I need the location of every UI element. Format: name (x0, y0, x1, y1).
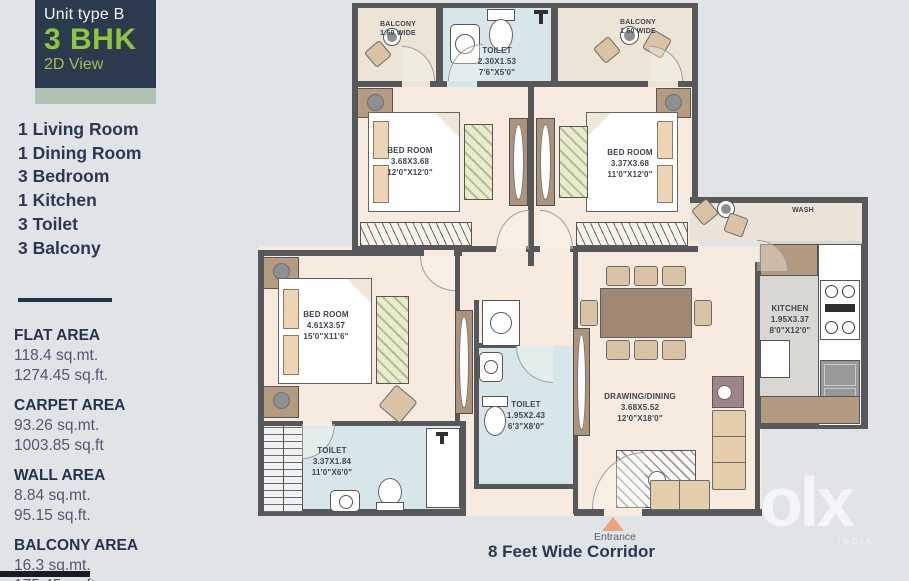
burner-icon (825, 285, 838, 298)
stat-carpet-area: CARPET AREA 93.26 sq.mt. 1003.85 sq.ft (14, 396, 138, 455)
window (509, 118, 528, 206)
corridor-label: 8 Feet Wide Corridor (488, 542, 655, 562)
tv-speaker (717, 385, 732, 400)
room-wash (690, 197, 868, 241)
toilet-tank-icon (376, 502, 404, 511)
list-item-kitchen: 1 Kitchen (18, 189, 141, 213)
stat-sqft: 1003.85 sq.ft (14, 436, 138, 456)
window (455, 310, 473, 414)
stat-sqft: 95.15 sq.ft. (14, 506, 138, 526)
bed-fold (435, 113, 459, 137)
drawer (824, 364, 856, 386)
cushion-line (713, 436, 745, 437)
stat-sqmt: 118.4 sq.mt. (14, 346, 138, 366)
list-item-toilet: 3 Toilet (18, 213, 141, 237)
sink-icon (479, 352, 503, 382)
bed-fold (587, 113, 611, 137)
stat-label: BALCONY AREA (14, 536, 138, 556)
unit-type-label: Unit type B (44, 6, 156, 24)
list-item-bedroom: 3 Bedroom (18, 165, 141, 189)
olx-watermark: olx (760, 462, 852, 542)
wardrobe-icon (464, 124, 493, 200)
room-count-list: 1 Living Room 1 Dining Room 3 Bedroom 1 … (18, 118, 141, 260)
stat-sqmt: 93.26 sq.mt. (14, 416, 138, 436)
window (536, 118, 555, 206)
wash-label: WASH (768, 206, 838, 215)
wall (692, 3, 698, 203)
chair-icon (694, 300, 712, 326)
stat-label: FLAT AREA (14, 326, 138, 346)
dining-table-icon (600, 288, 692, 338)
wardrobe-hatch-icon (576, 222, 688, 246)
list-item-balcony: 3 Balcony (18, 237, 141, 261)
wall (460, 421, 466, 516)
wall (862, 197, 868, 429)
stat-flat-area: FLAT AREA 118.4 sq.mt. 1274.45 sq.ft. (14, 326, 138, 385)
view-mode-label: 2D View (44, 56, 156, 74)
door-gap (402, 81, 430, 87)
balcony-left-label: BALCONY 1.60 WIDE (360, 20, 436, 39)
shower-icon (440, 436, 444, 444)
drawing-dining-label: DRAWING/DINING 3.68X5.52 12'0"X18'0" (585, 392, 695, 424)
chair-icon (662, 266, 686, 286)
sofa-icon (650, 480, 710, 510)
kitchen-label: KITCHEN 1.95X3.37 8'0"X12'0" (744, 304, 836, 336)
chair-icon (606, 340, 630, 360)
stat-wall-area: WALL AREA 8.84 sq.mt. 95.15 sq.ft. (14, 466, 138, 525)
sink-icon (330, 490, 360, 512)
washing-machine-icon (482, 300, 520, 346)
door-gap (447, 81, 477, 87)
frame-bar (0, 571, 90, 577)
unit-header: Unit type B 3 BHK 2D View (35, 0, 156, 88)
bedroom-1-label: BED ROOM 3.68X3.68 12'0"X12'0" (360, 146, 460, 178)
chair-icon (580, 300, 598, 326)
burner-icon (842, 285, 855, 298)
chair-icon (662, 340, 686, 360)
door-gap (648, 81, 678, 87)
wall (551, 3, 558, 87)
bed-fold (347, 279, 371, 303)
bedside-table-icon (263, 386, 299, 418)
wall (574, 509, 604, 516)
wardrobe-hatch-icon (360, 222, 472, 246)
toilet-mid-label: TOILET 1.95X2.43 6'3"X8'0" (481, 400, 571, 432)
area-stats: FLAT AREA 118.4 sq.mt. 1274.45 sq.ft. CA… (14, 326, 138, 581)
bedroom-3-label: BED ROOM 4.61X3.57 15'0"X11'6" (280, 310, 372, 342)
wall (690, 197, 868, 203)
stat-label: CARPET AREA (14, 396, 138, 416)
bhk-label: 3 BHK (44, 24, 156, 56)
olx-watermark-region: INDIA (838, 537, 874, 546)
list-item-living: 1 Living Room (18, 118, 141, 142)
wall (352, 3, 358, 252)
floor-plan-page: Unit type B 3 BHK 2D View 1 Living Room … (0, 0, 909, 581)
bedroom-2-label: BED ROOM 3.37X3.68 11'0"X12'0" (580, 148, 680, 180)
wall (474, 484, 578, 489)
cushion-line (713, 462, 745, 463)
wall (642, 509, 762, 516)
balcony-right-label: BALCONY 1.60 WIDE (600, 18, 676, 37)
burner-icon (842, 321, 855, 334)
wall (474, 300, 479, 489)
sofa-icon (712, 410, 746, 490)
chair-icon (634, 340, 658, 360)
toilet-top-label: TOILET 2.30X1.53 7'6"X5'0" (445, 46, 549, 78)
kitchen-counter-icon (760, 396, 860, 424)
chair-icon (634, 266, 658, 286)
entrance-arrow-icon (602, 517, 624, 531)
stat-sqmt: 8.84 sq.mt. (14, 486, 138, 506)
toilet-bottom-label: TOILET 3.37X1.84 11'0"X6'0" (272, 446, 392, 478)
header-strip (35, 88, 156, 104)
chair-icon (606, 266, 630, 286)
stat-sqft: 1274.45 sq.ft. (14, 366, 138, 386)
wardrobe-icon (376, 296, 409, 384)
wall (352, 3, 698, 8)
divider (18, 298, 112, 302)
list-item-dining: 1 Dining Room (18, 142, 141, 166)
cushion-line (679, 481, 680, 509)
shower-icon (539, 14, 543, 24)
wall (528, 252, 534, 266)
tv-unit-icon (712, 376, 744, 408)
wall (436, 3, 443, 87)
fridge-icon (760, 340, 790, 378)
stat-label: WALL AREA (14, 466, 138, 486)
